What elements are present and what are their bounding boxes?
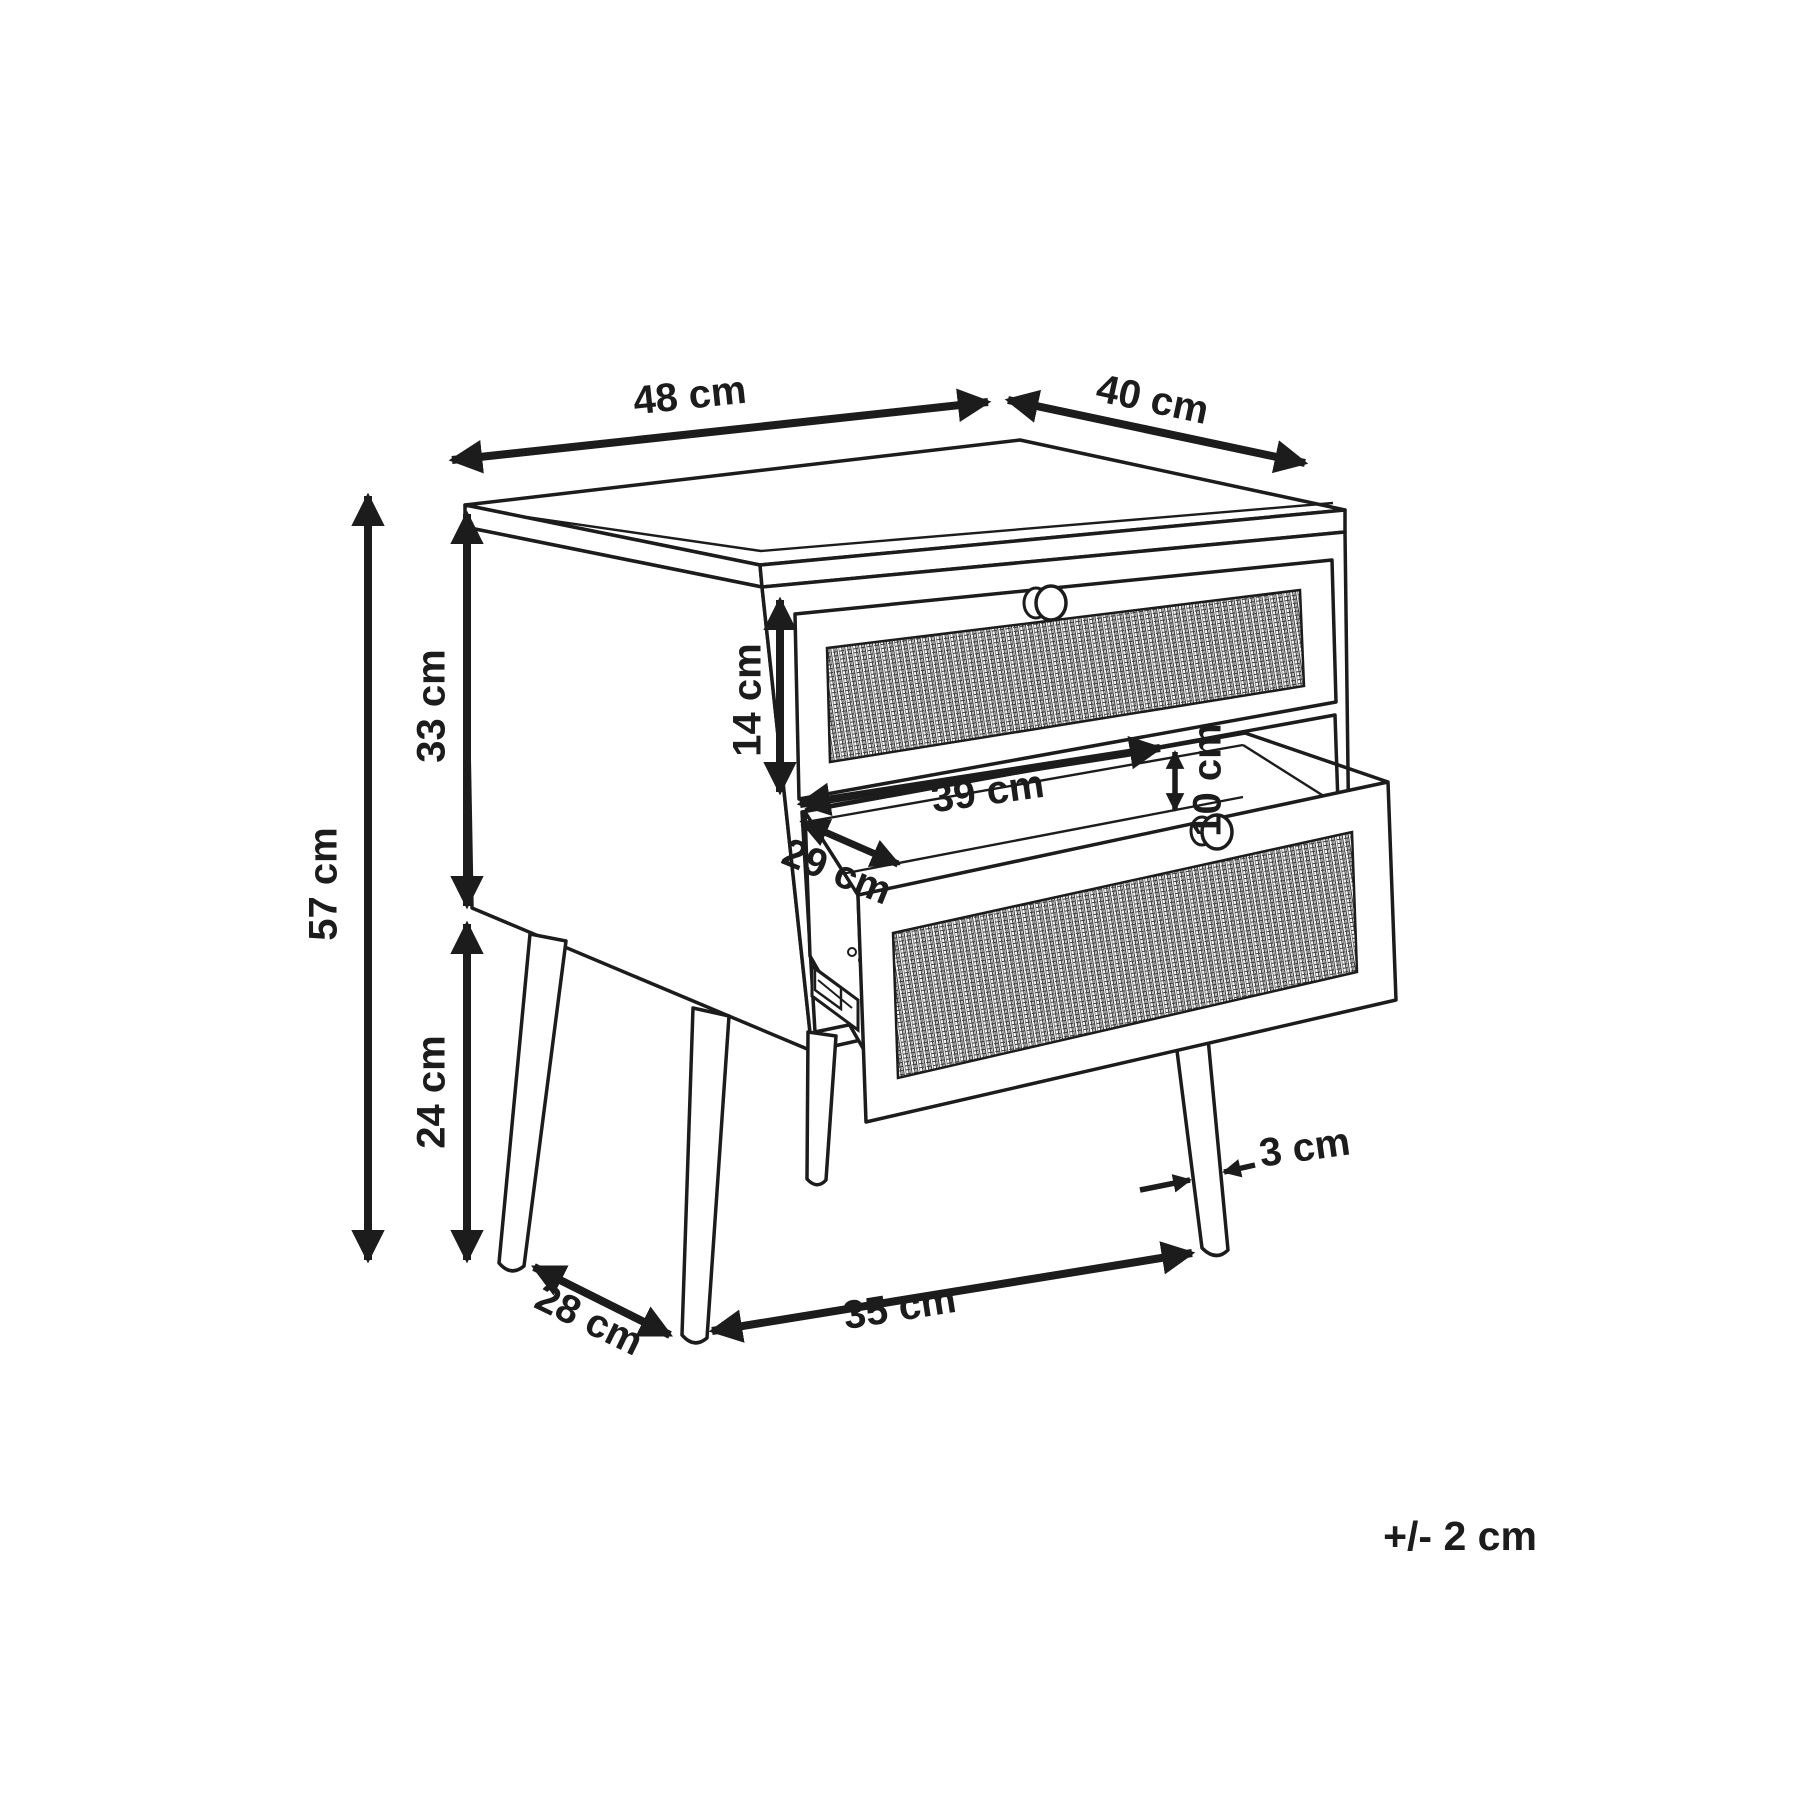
label-body-height: 33 cm	[410, 649, 454, 762]
label-drawer-inner-height: 10 cm	[1186, 723, 1230, 836]
label-leg-diameter: 3 cm	[1256, 1119, 1352, 1175]
diagram-canvas: 48 cm 40 cm 57 cm 33 cm 24 cm 14 cm 39 c…	[0, 0, 1800, 1800]
label-leg-gap-front: 35 cm	[840, 1277, 959, 1338]
cabinet-drawing	[465, 440, 1396, 1343]
leg-back-left	[499, 934, 566, 1271]
leg-front-left	[682, 1008, 729, 1343]
label-leg-gap-side: 28 cm	[528, 1275, 649, 1364]
label-top-width: 48 cm	[631, 368, 748, 424]
furniture-dimension-diagram: 48 cm 40 cm 57 cm 33 cm 24 cm 14 cm 39 c…	[0, 0, 1800, 1800]
label-overall-height: 57 cm	[302, 827, 346, 940]
side-panel	[465, 527, 812, 1051]
label-leg-height: 24 cm	[410, 1035, 454, 1148]
top-drawer-knob-icon	[1024, 586, 1066, 620]
arrow-leg-diameter-left	[1140, 1180, 1190, 1190]
tolerance-note: +/- 2 cm	[1383, 1513, 1537, 1559]
arrow-leg-diameter-right	[1224, 1165, 1255, 1172]
leg-back-right	[807, 1032, 836, 1185]
label-drawer-front-height: 14 cm	[726, 643, 770, 756]
